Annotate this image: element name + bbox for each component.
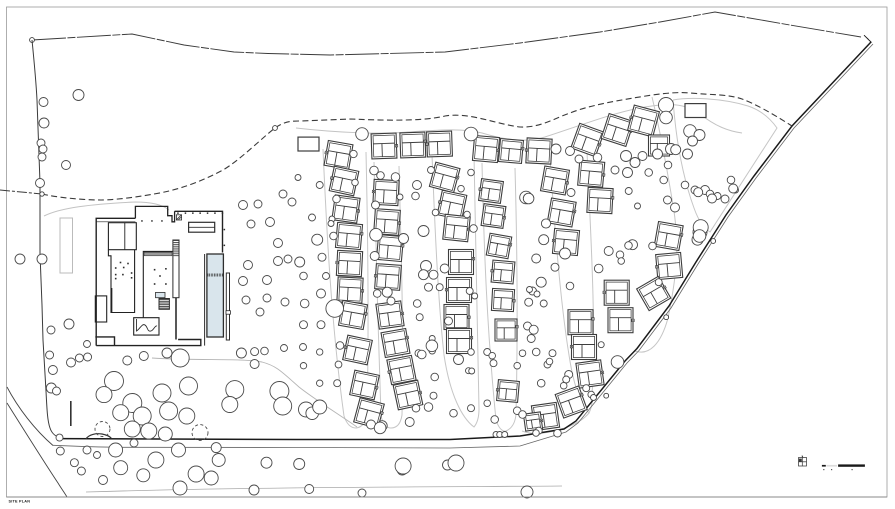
svg-text:SITE PLAN: SITE PLAN: [9, 499, 31, 503]
